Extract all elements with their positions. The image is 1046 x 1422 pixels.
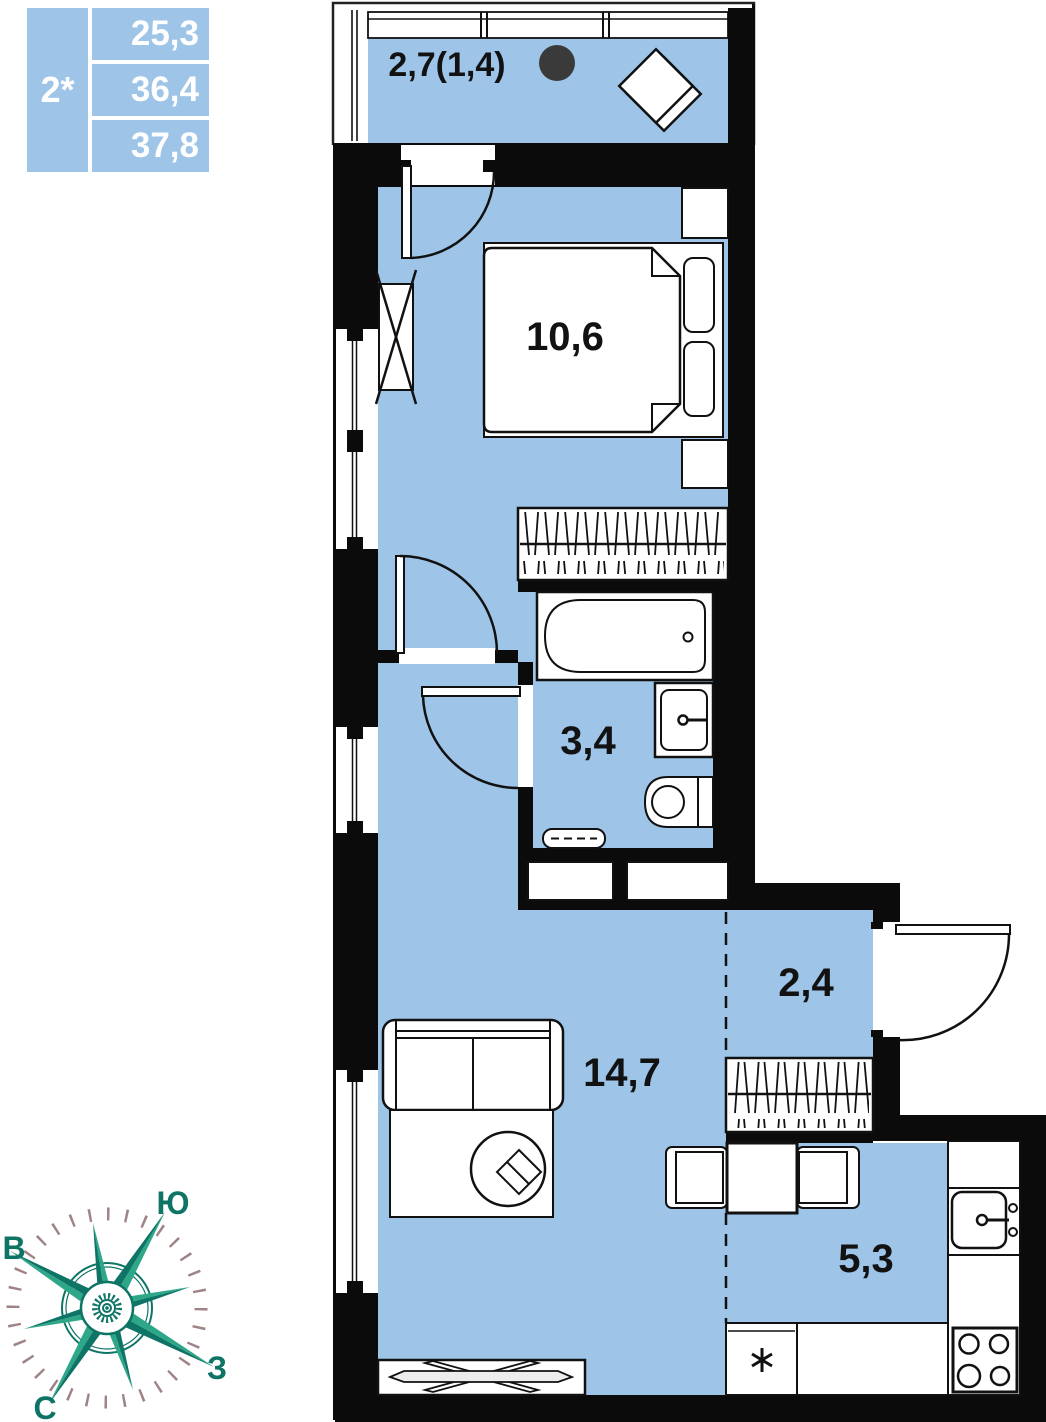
window — [336, 727, 378, 833]
apartment-area-value: 36,4 — [92, 64, 209, 116]
sofa — [383, 1020, 563, 1110]
apartment-info-card: 2* 25,3 36,4 37,8 — [27, 8, 209, 172]
kitchen-area-label: 5,3 — [838, 1237, 894, 1281]
bedside-table — [682, 440, 728, 488]
window — [336, 329, 378, 549]
living-area-value: 25,3 — [92, 8, 209, 60]
radiator — [376, 270, 416, 404]
bath-mat — [543, 829, 605, 848]
compass-east-label: В — [2, 1230, 25, 1266]
balcony-door-opening — [401, 145, 495, 185]
rooms-count-badge: 2* — [27, 8, 88, 172]
bathroom-sink — [655, 683, 713, 757]
wardrobe — [518, 508, 728, 580]
window — [336, 1070, 378, 1293]
wall-niche — [528, 862, 613, 900]
bedroom-area-label: 10,6 — [526, 315, 604, 359]
floorplan-page: 2* 25,3 36,4 37,8 — [0, 0, 1046, 1422]
wall-niche — [627, 862, 728, 900]
bathroom-area-label: 3,4 — [560, 719, 616, 763]
coffee-table — [471, 1132, 545, 1206]
floor-plan: 2,7(1,4) 10,6 3,4 14,7 2,4 5,3 — [0, 0, 1046, 1422]
compass-rose-icon: Ю В З С — [2, 1185, 227, 1422]
compass-south-label: Ю — [157, 1185, 190, 1221]
tv-stand — [378, 1360, 585, 1395]
hallway-area-label: 2,4 — [778, 961, 834, 1005]
dining-table — [666, 1143, 859, 1213]
total-area-value: 37,8 — [92, 120, 209, 172]
wall-niche — [682, 188, 728, 238]
compass-west-label: З — [207, 1350, 227, 1386]
wardrobe — [726, 1058, 873, 1132]
stove — [953, 1328, 1017, 1392]
balcony-column — [539, 45, 575, 81]
entrance-door — [871, 922, 1010, 1040]
compass-north-label: С — [33, 1390, 56, 1422]
balcony-area-label: 2,7(1,4) — [388, 46, 505, 84]
bathtub — [537, 592, 713, 680]
living-room-area-label: 14,7 — [583, 1051, 661, 1095]
toilet — [645, 777, 713, 827]
